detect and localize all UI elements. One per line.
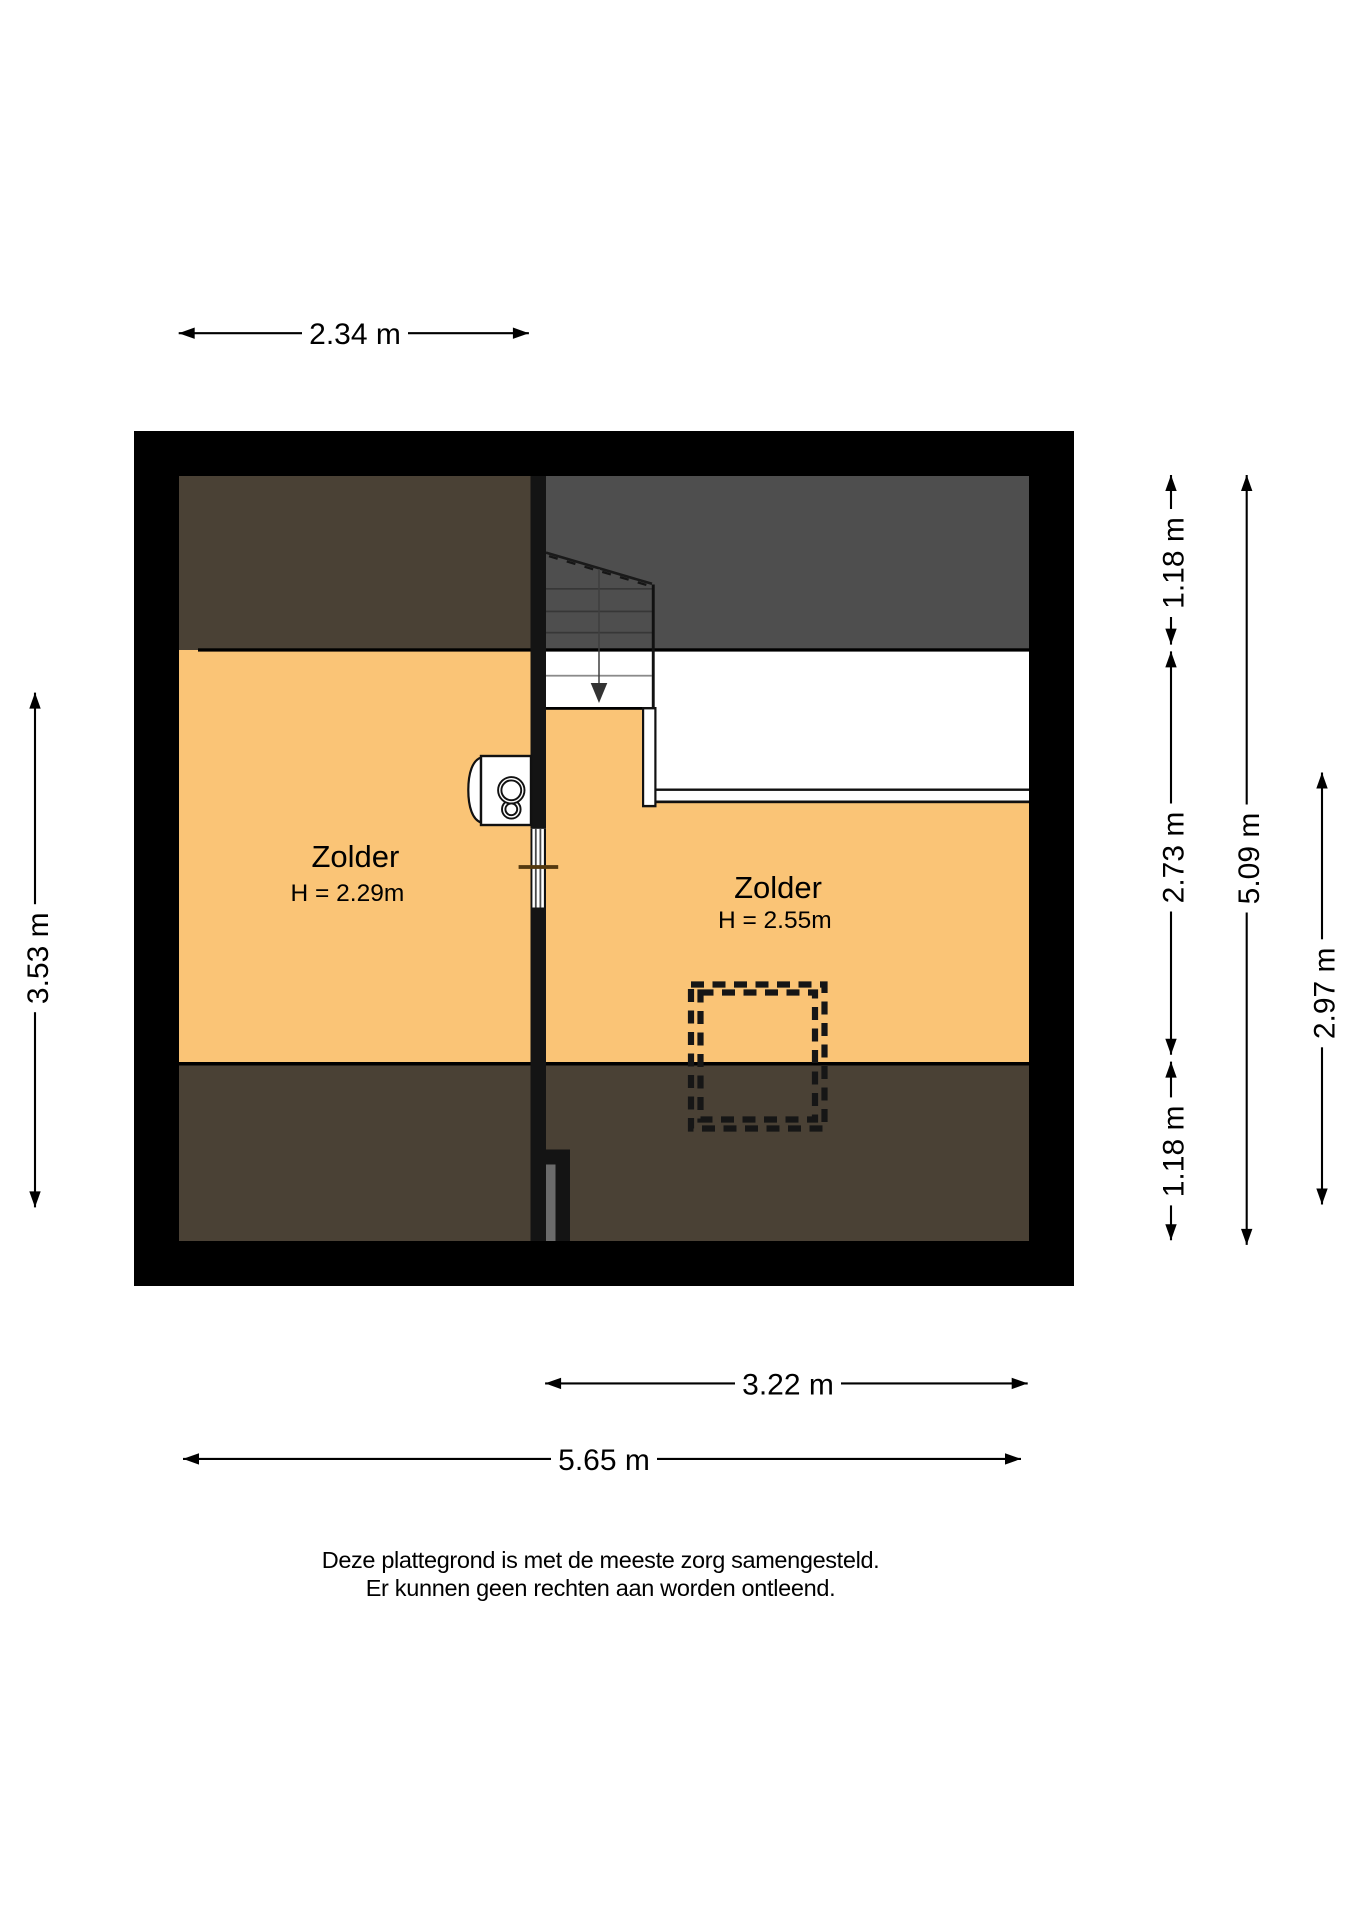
svg-text:Zolder: Zolder	[734, 870, 822, 905]
svg-text:3.53 m: 3.53 m	[22, 912, 55, 1004]
svg-text:5.09 m: 5.09 m	[1233, 813, 1266, 905]
svg-text:H = 2.29m: H = 2.29m	[291, 880, 405, 907]
svg-text:5.65 m: 5.65 m	[558, 1444, 650, 1477]
svg-text:1.18 m: 1.18 m	[1158, 1106, 1191, 1198]
svg-text:3.22 m: 3.22 m	[742, 1368, 834, 1401]
svg-text:H = 2.55m: H = 2.55m	[718, 907, 832, 934]
svg-text:2.73 m: 2.73 m	[1158, 812, 1191, 904]
svg-text:2.97 m: 2.97 m	[1308, 947, 1341, 1039]
svg-text:Zolder: Zolder	[311, 839, 399, 874]
svg-text:2.34 m: 2.34 m	[309, 318, 401, 351]
svg-text:Er kunnen geen rechten aan wor: Er kunnen geen rechten aan worden ontlee…	[366, 1575, 836, 1601]
svg-text:Deze plattegrond is met de mee: Deze plattegrond is met de meeste zorg s…	[322, 1547, 880, 1573]
svg-text:1.18 m: 1.18 m	[1158, 517, 1191, 609]
